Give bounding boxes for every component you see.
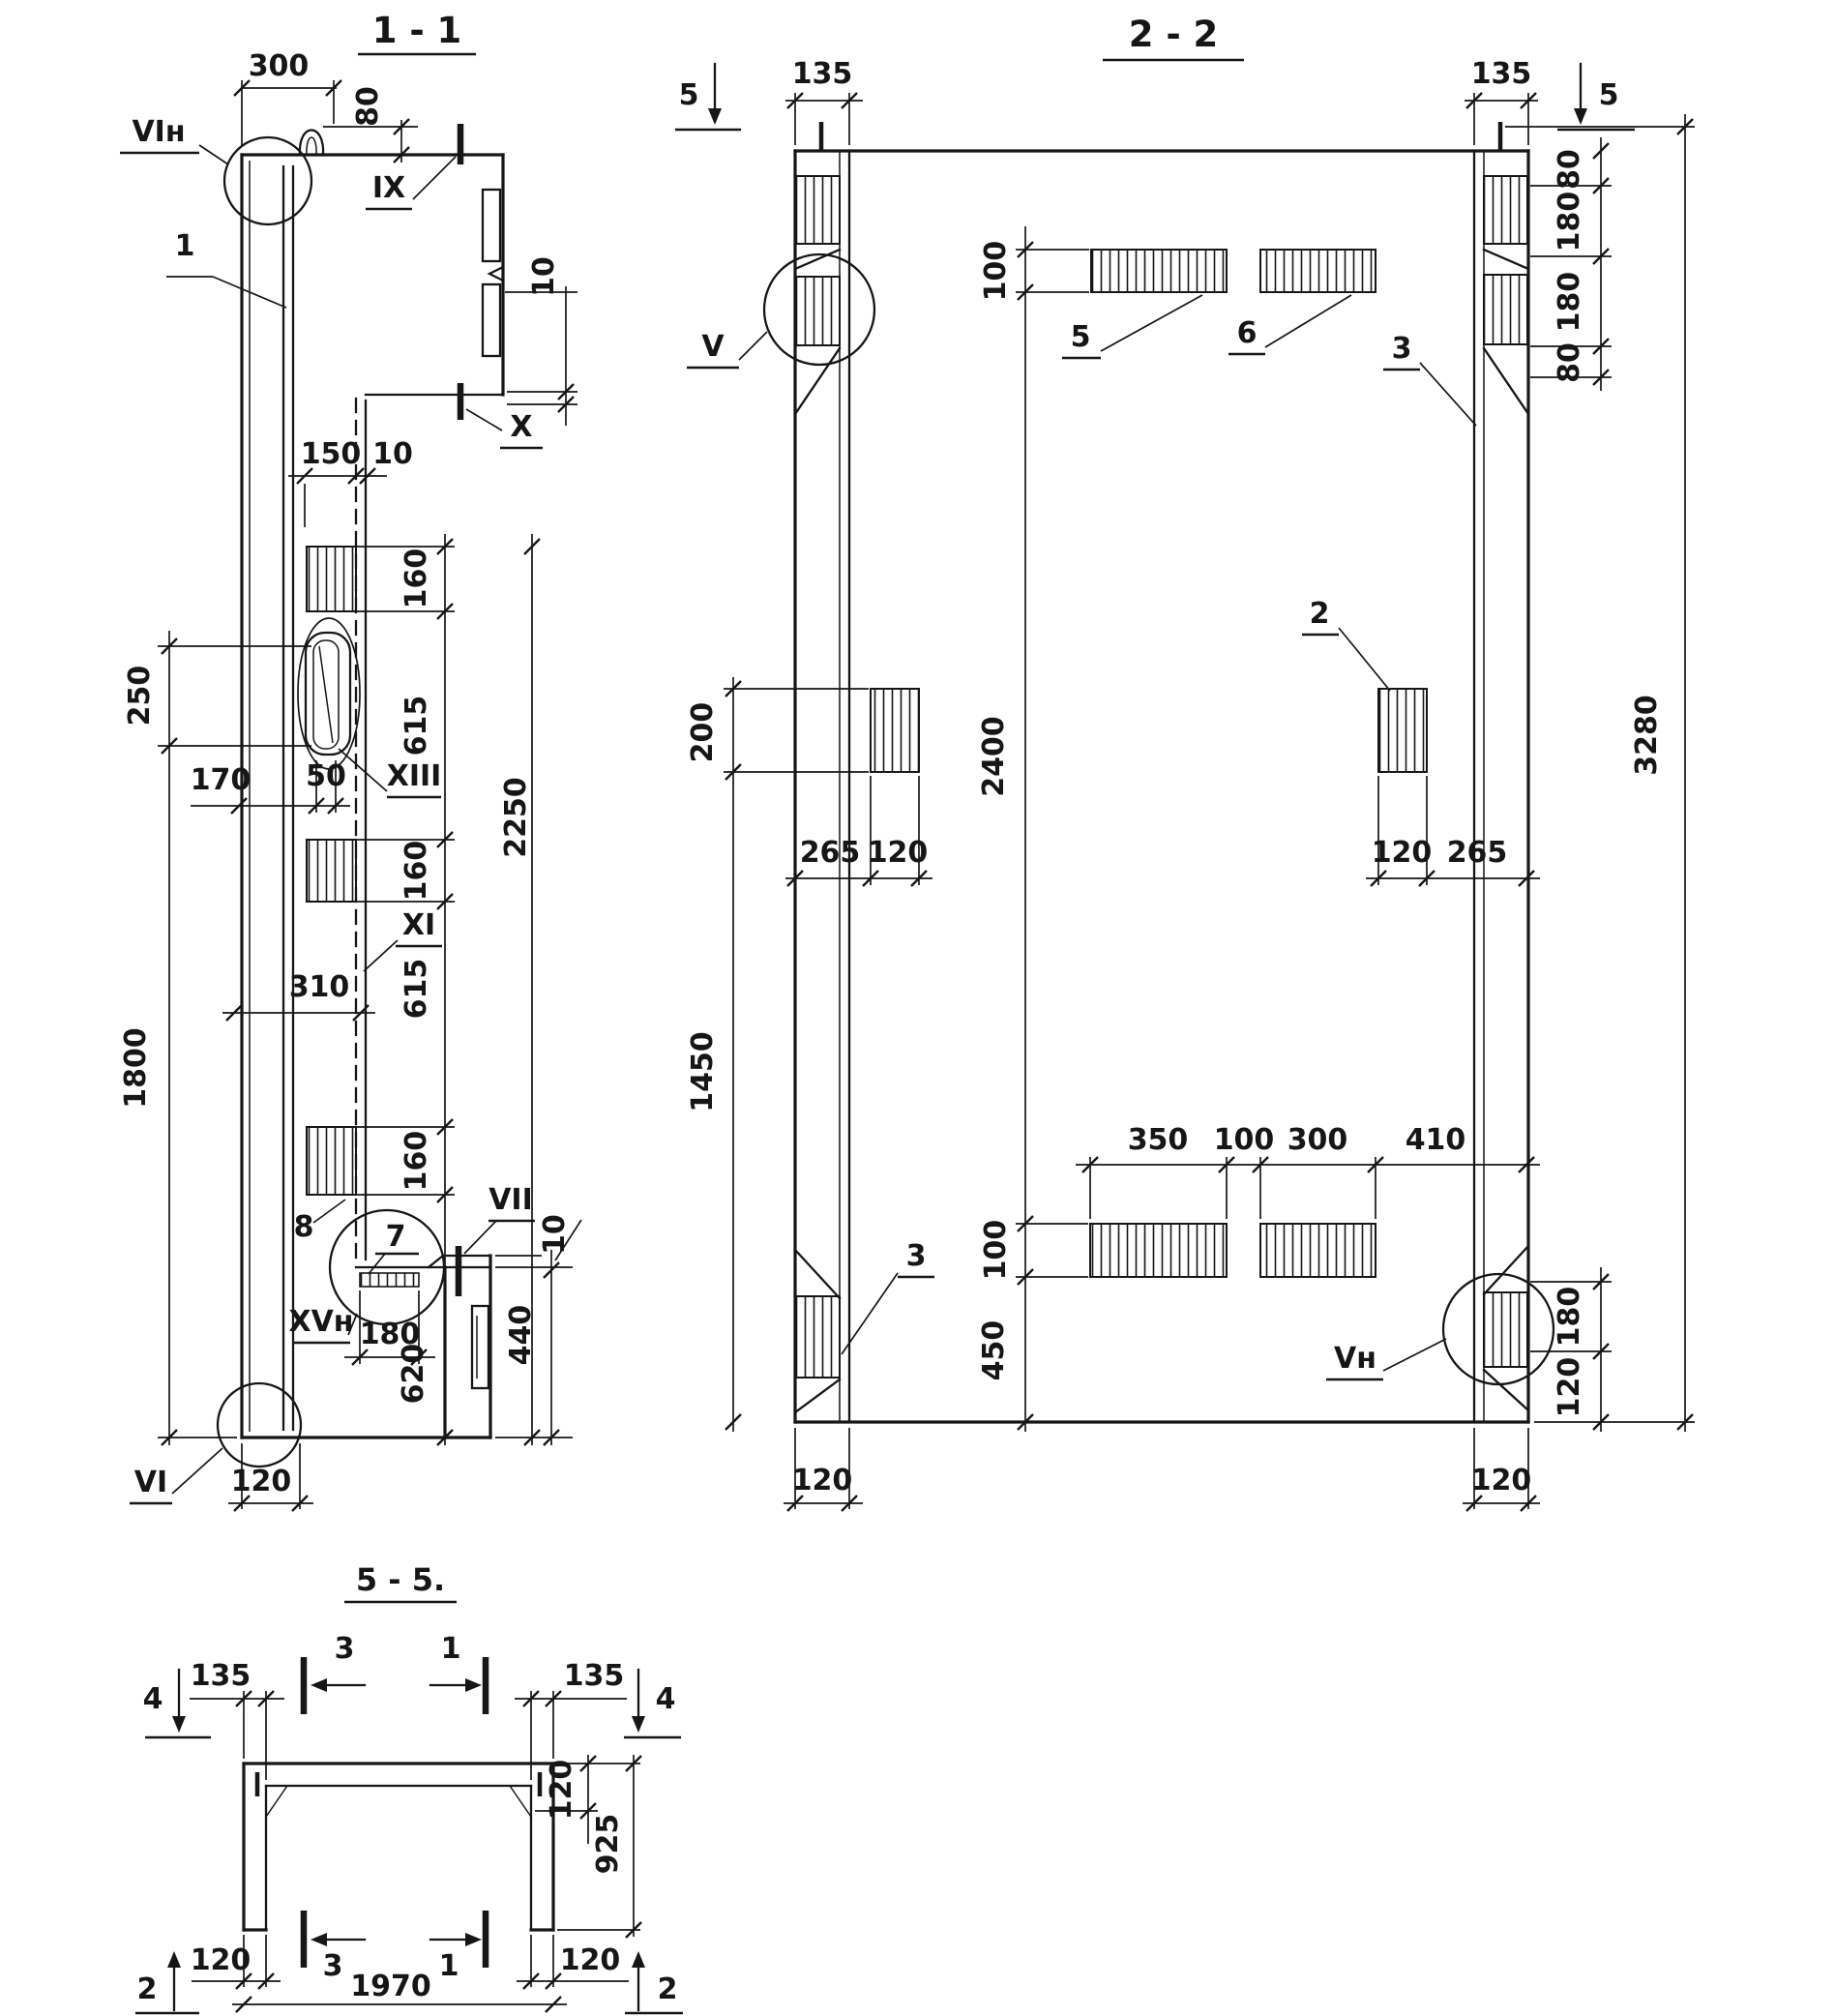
right-wall-plate-bottom xyxy=(1484,1292,1527,1367)
dim-160-b: 160 xyxy=(400,841,433,902)
label-xiii: XIII xyxy=(387,759,442,793)
dim-120-rb: 120 xyxy=(1553,1357,1586,1418)
mark-cut5-left: 5 xyxy=(679,78,699,112)
dim-180-rb: 180 xyxy=(1553,1287,1586,1348)
label-item-3-left: 3 xyxy=(906,1239,927,1273)
dim-440: 440 xyxy=(504,1305,538,1366)
dim-310: 310 xyxy=(289,970,350,1004)
dim-10-step: 10 xyxy=(538,1214,572,1255)
left-wall-plate-mid xyxy=(796,277,840,345)
mark-cut1-top: 1 xyxy=(441,1632,461,1666)
dim-350: 350 xyxy=(1128,1123,1189,1157)
drawing-canvas: 1 - 1 xyxy=(0,0,1835,2016)
dim-265-left: 265 xyxy=(800,836,861,870)
label-item-2: 2 xyxy=(1310,597,1330,631)
dim-200: 200 xyxy=(686,702,720,763)
embedded-strip-7 xyxy=(360,1273,419,1287)
dim-615-a: 615 xyxy=(400,696,433,756)
label-xv: XVн xyxy=(288,1305,353,1339)
drawing-sheet: 1 - 1 xyxy=(0,0,1835,2016)
mark-cut4-left: 4 xyxy=(143,1682,163,1716)
label-v: V xyxy=(701,330,725,364)
dim-250: 250 xyxy=(123,666,157,726)
dim-300: 300 xyxy=(1287,1123,1348,1157)
dim-170: 170 xyxy=(191,763,252,797)
dim-180: 180 xyxy=(360,1318,421,1351)
label-item-6: 6 xyxy=(1237,316,1258,350)
right-wall-plate-mid xyxy=(1484,275,1527,344)
dim-160-c: 160 xyxy=(400,1131,433,1192)
dim-120-bl: 120 xyxy=(191,1943,252,1977)
dim-925: 925 xyxy=(591,1814,625,1875)
label-vi-bottom: VI xyxy=(134,1466,167,1499)
dim-80: 80 xyxy=(351,86,385,127)
dim-135-left: 135 xyxy=(191,1659,252,1693)
plate-bottom-right xyxy=(1260,1224,1376,1277)
dim-1970: 1970 xyxy=(350,1970,431,2003)
plate-2 xyxy=(1378,689,1427,772)
label-item-3-right: 3 xyxy=(1392,332,1412,366)
mark-cut2-left: 2 xyxy=(137,1972,158,2006)
dim-120-leg: 120 xyxy=(545,1760,578,1821)
plate-mid-left xyxy=(871,689,919,772)
plate-bottom-left xyxy=(1090,1224,1227,1277)
dim-120-right: 120 xyxy=(1372,836,1433,870)
embedded-plate-c xyxy=(307,1127,356,1195)
label-xi: XI xyxy=(402,908,435,942)
label-bar-1: 1 xyxy=(175,229,195,263)
dim-265-right: 265 xyxy=(1447,836,1508,870)
dim-100-top: 100 xyxy=(979,241,1013,302)
label-item-5: 5 xyxy=(1071,320,1091,354)
label-vn: Vн xyxy=(1334,1342,1376,1376)
dim-10-block: 10 xyxy=(527,256,561,297)
label-item-8: 8 xyxy=(294,1210,314,1244)
dim-620: 620 xyxy=(397,1344,430,1405)
label-x: X xyxy=(510,410,532,444)
mark-cut1-bottom: 1 xyxy=(439,1949,459,1983)
mark-cut2-right: 2 xyxy=(658,1972,678,2006)
plate-6 xyxy=(1260,250,1376,292)
dim-615-b: 615 xyxy=(400,959,433,1020)
dim-80-a: 80 xyxy=(1553,149,1586,190)
embedded-plate-a xyxy=(307,547,356,611)
dim-300: 300 xyxy=(249,49,310,83)
section-1-1-title: 1 - 1 xyxy=(372,10,462,51)
label-item-7: 7 xyxy=(386,1220,406,1254)
dim-50: 50 xyxy=(306,759,346,793)
dim-120: 120 xyxy=(231,1465,292,1498)
mark-cut5-right: 5 xyxy=(1599,78,1619,112)
mark-cut3-top: 3 xyxy=(335,1632,355,1666)
dim-120-bl: 120 xyxy=(792,1464,853,1497)
dim-2250: 2250 xyxy=(499,777,533,858)
dim-160-a: 160 xyxy=(400,548,433,609)
dim-150: 150 xyxy=(301,437,362,471)
dim-135-right: 135 xyxy=(1471,57,1532,91)
right-wall-plate-top xyxy=(1484,176,1527,244)
label-ix: IX xyxy=(372,171,405,205)
section-5-5-title: 5 - 5. xyxy=(356,1561,445,1598)
left-wall-plate-bottom xyxy=(796,1296,840,1378)
label-vii: VII xyxy=(488,1183,533,1217)
dim-10-web: 10 xyxy=(372,437,413,471)
dim-450: 450 xyxy=(977,1320,1011,1381)
section-2-2-title: 2 - 2 xyxy=(1129,14,1219,55)
dim-100-bottom: 100 xyxy=(979,1220,1013,1281)
dim-1450: 1450 xyxy=(686,1031,720,1112)
mark-cut3-bottom: 3 xyxy=(323,1949,343,1983)
dim-180-a: 180 xyxy=(1553,192,1586,252)
embedded-plate-b xyxy=(307,840,356,902)
label-vi-top: VIн xyxy=(132,115,185,149)
left-wall-plate-top xyxy=(796,176,840,244)
dim-180-b: 180 xyxy=(1553,272,1586,333)
dim-135-left: 135 xyxy=(792,57,853,91)
mark-cut4-right: 4 xyxy=(656,1682,676,1716)
dim-2400: 2400 xyxy=(977,716,1011,797)
dim-3280: 3280 xyxy=(1630,695,1664,776)
dim-410: 410 xyxy=(1406,1123,1466,1157)
dim-120-br: 120 xyxy=(1471,1464,1532,1497)
dim-120-left: 120 xyxy=(868,836,929,870)
dim-1800: 1800 xyxy=(119,1027,153,1109)
dim-135-right: 135 xyxy=(564,1659,625,1693)
dim-80-b: 80 xyxy=(1553,342,1586,383)
dim-120-br: 120 xyxy=(560,1943,621,1977)
plate-5 xyxy=(1091,250,1227,292)
dim-100-row: 100 xyxy=(1214,1123,1275,1157)
